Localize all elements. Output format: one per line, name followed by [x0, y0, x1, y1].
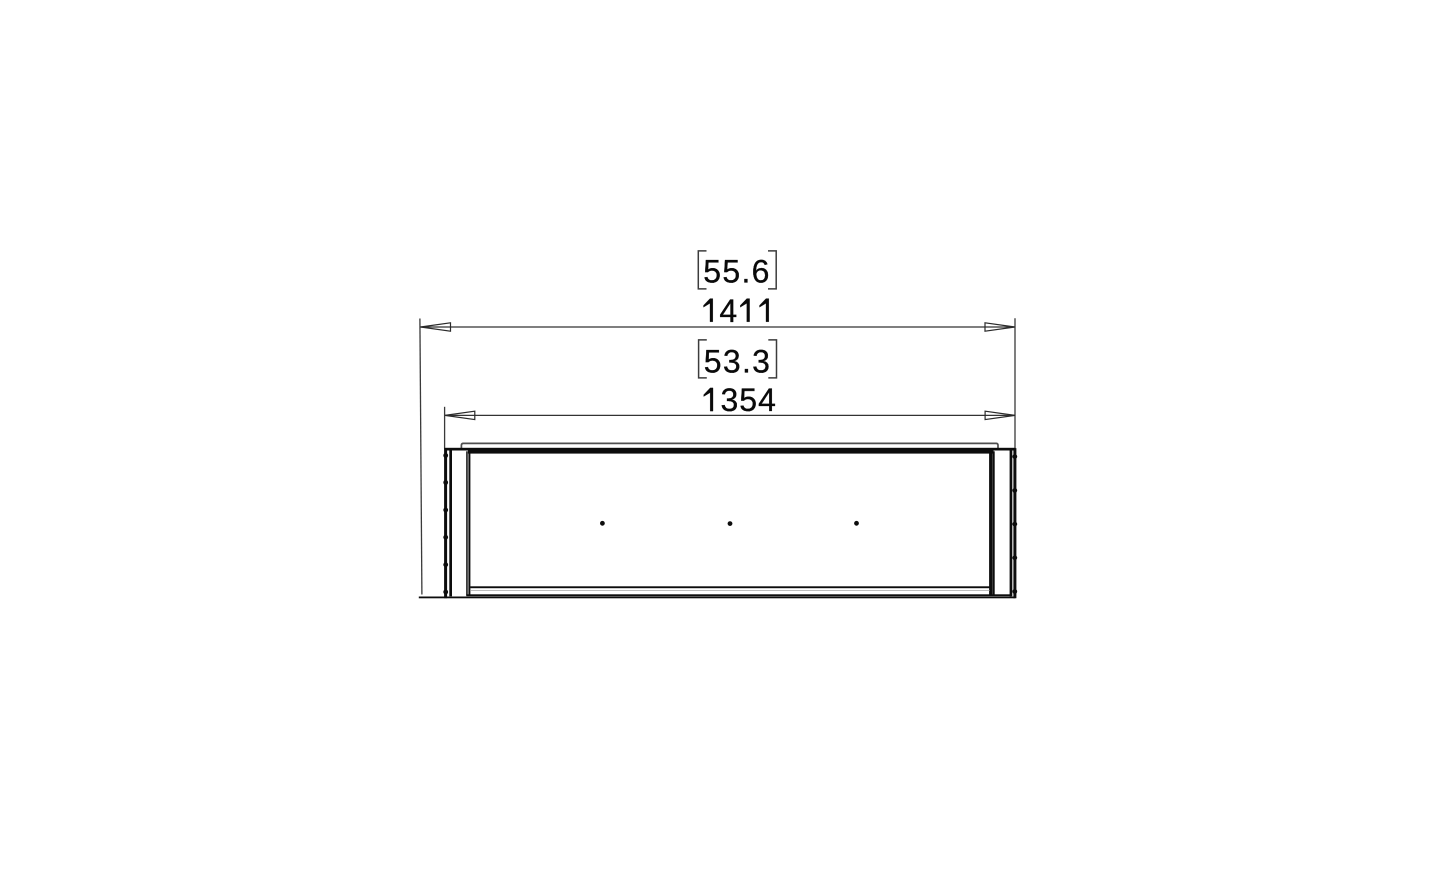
svg-text:4: 4: [719, 293, 737, 329]
svg-text:53.3: 53.3: [704, 343, 771, 379]
svg-text:354: 354: [721, 382, 777, 418]
svg-text:55.6: 55.6: [703, 254, 770, 290]
